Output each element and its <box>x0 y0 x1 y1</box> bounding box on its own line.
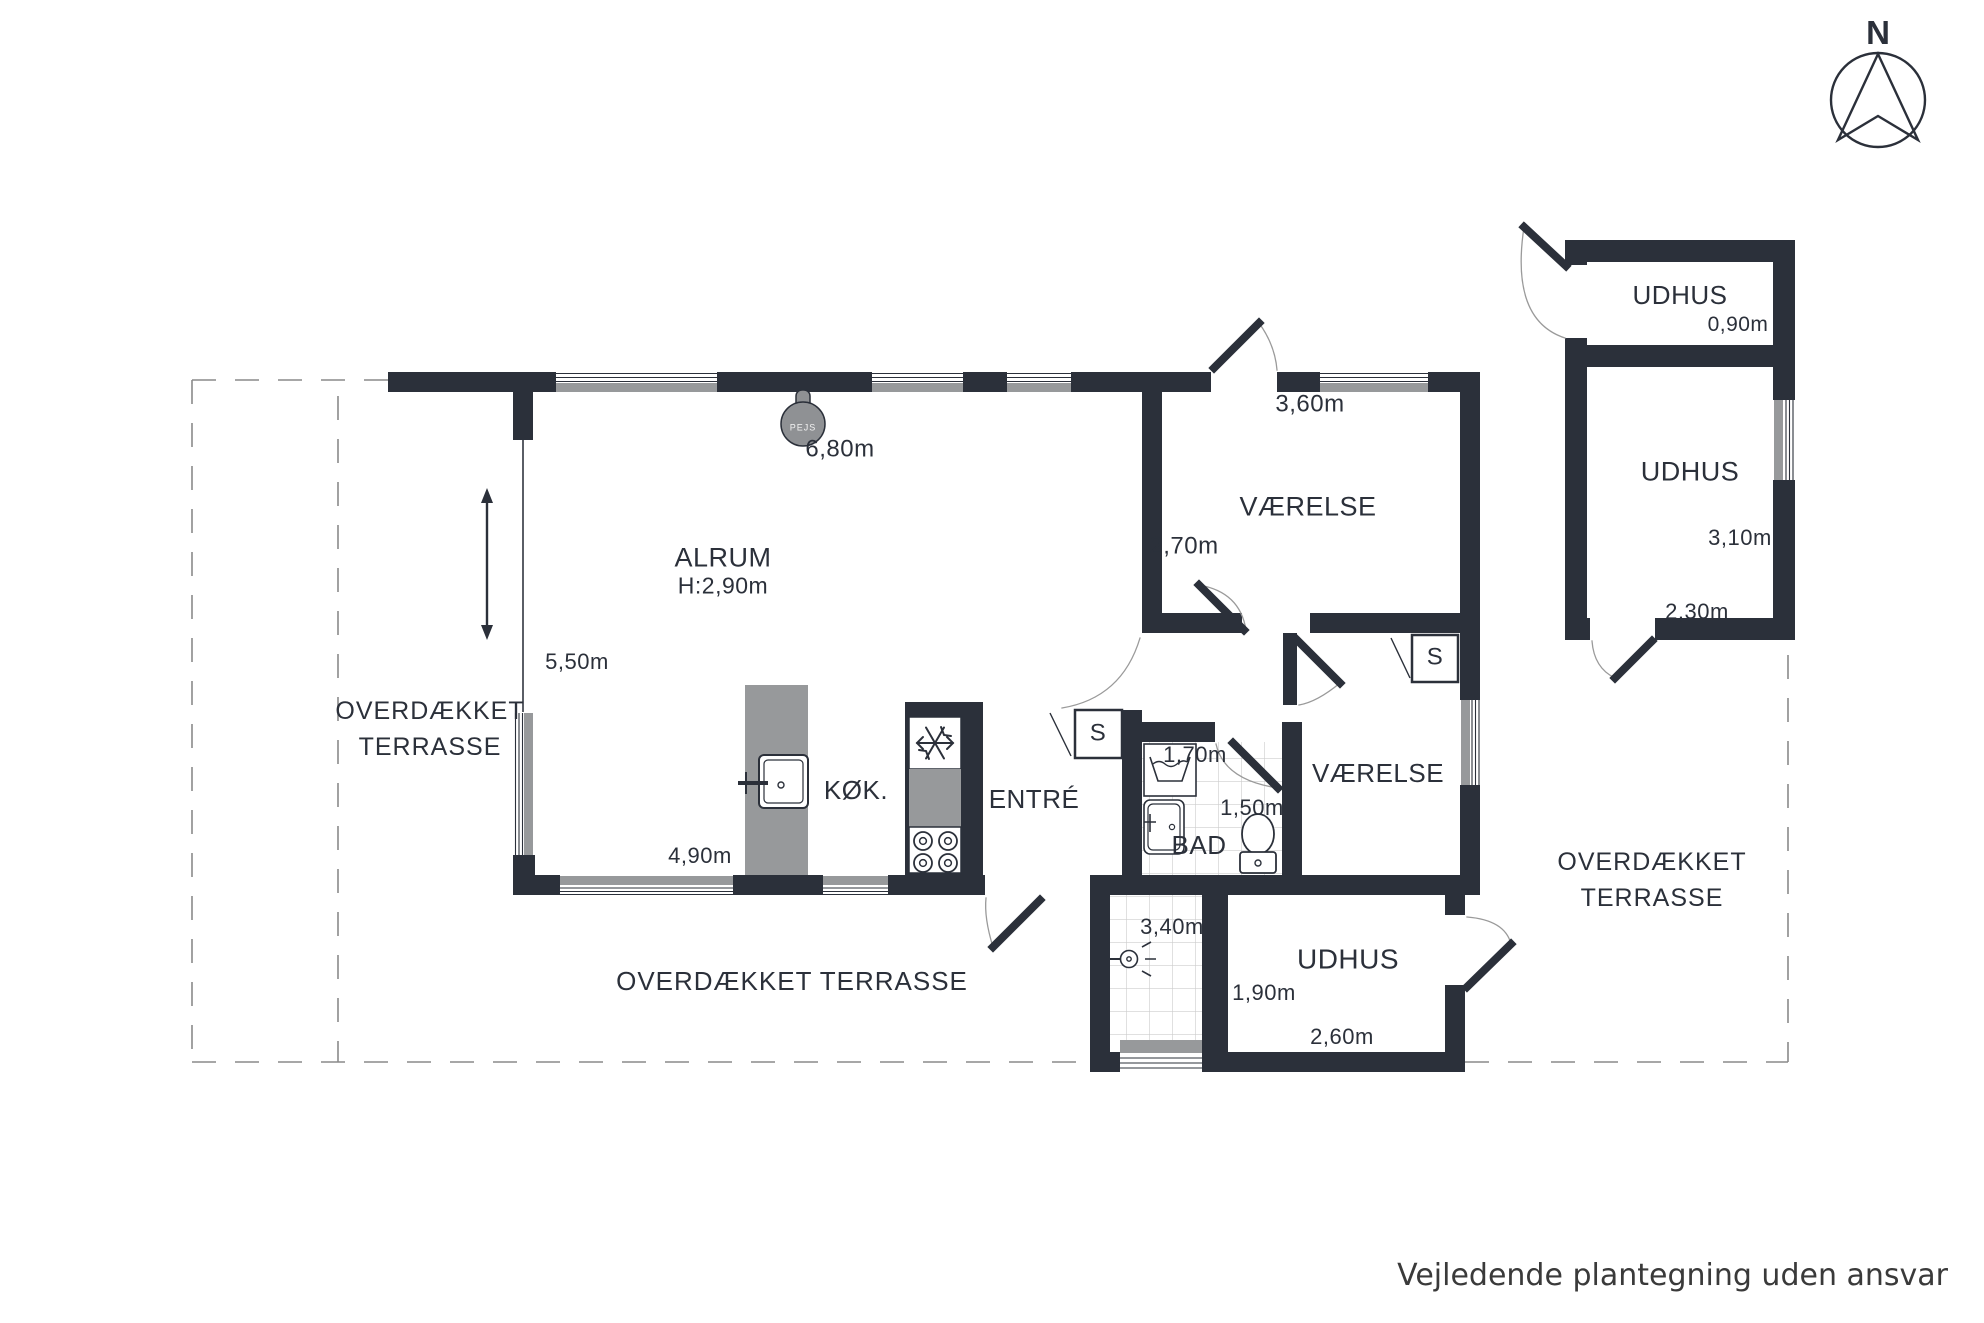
room-label-vaerelse-2: VÆRELSE <box>1312 755 1444 793</box>
dim-bad-1: 1,70m <box>1163 739 1227 771</box>
dim-hallway: 3,40m <box>1140 911 1204 943</box>
floorplan-page: N ALRUM H:2,90m 6,80m 5,50m 4,90m KØK. E… <box>0 0 1984 1323</box>
floorplan-drawing <box>0 0 1984 1323</box>
terrace-label-left: OVERDÆKKET TERRASSE <box>325 693 535 766</box>
dim-shed-depth: 1,90m <box>1232 977 1296 1009</box>
room-label-entre: ENTRÉ <box>989 781 1080 819</box>
compass-icon <box>1831 53 1925 147</box>
closet-label-2: S <box>1427 641 1444 676</box>
dim-alrum-side: 5,50m <box>545 646 609 678</box>
dim-alrum-height: H:2,90m <box>678 569 768 602</box>
dim-vaerelse1-width: 3,60m <box>1275 388 1344 423</box>
terrace-label-right: OVERDÆKKET TERRASSE <box>1547 844 1757 917</box>
dim-udhus-top: 0,90m <box>1708 310 1769 340</box>
dim-udhus-main-width: 2,30m <box>1665 596 1729 628</box>
room-label-vaerelse-1: VÆRELSE <box>1239 487 1376 526</box>
fireplace-label: PEJS <box>790 421 817 434</box>
dim-alrum-bottom: 4,90m <box>668 840 732 872</box>
dim-alrum-width: 6,80m <box>805 433 874 468</box>
closet-boxes <box>1050 635 1458 758</box>
dim-bad-2: 1,50m <box>1220 792 1284 824</box>
disclaimer-text: Vejledende plantegning uden ansvar <box>1397 1258 1948 1293</box>
dim-udhus-main-depth: 3,10m <box>1708 522 1772 554</box>
room-label-bad: BAD <box>1172 827 1227 865</box>
room-label-udhus-main: UDHUS <box>1641 452 1740 491</box>
terrace-label-bottom: OVERDÆKKET TERRASSE <box>616 963 968 1001</box>
sliding-door-arrow-icon <box>481 488 493 640</box>
dim-vaerelse1-depth: 2,70m <box>1149 530 1218 565</box>
compass-north-label: N <box>1866 9 1890 57</box>
room-label-udhus-shed: UDHUS <box>1297 940 1399 981</box>
dim-shed-width: 2,60m <box>1310 1021 1374 1053</box>
room-label-kitchen: KØK. <box>824 772 888 810</box>
closet-label-1: S <box>1090 717 1107 752</box>
